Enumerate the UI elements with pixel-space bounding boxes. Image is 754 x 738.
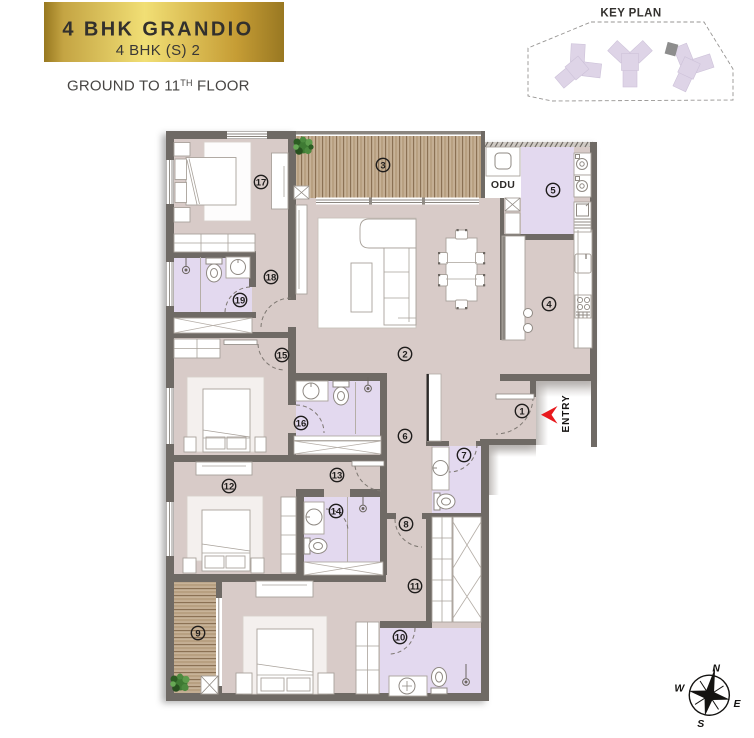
svg-text:4: 4	[546, 299, 552, 310]
svg-text:E: E	[733, 698, 741, 710]
svg-text:4 BHK (S) 2: 4 BHK (S) 2	[116, 42, 200, 59]
svg-text:9: 9	[195, 628, 200, 639]
svg-text:16: 16	[296, 418, 307, 429]
svg-text:13: 13	[332, 470, 343, 481]
svg-text:14: 14	[331, 506, 342, 517]
svg-text:ENTRY: ENTRY	[561, 394, 572, 432]
svg-text:10: 10	[395, 632, 406, 643]
svg-text:KEY PLAN: KEY PLAN	[600, 8, 661, 20]
svg-text:19: 19	[235, 295, 246, 306]
svg-text:S: S	[697, 718, 704, 730]
svg-text:12: 12	[224, 481, 235, 492]
svg-text:11: 11	[410, 581, 421, 592]
svg-text:ODU: ODU	[491, 179, 515, 191]
svg-text:18: 18	[266, 272, 277, 283]
svg-text:W: W	[674, 683, 685, 695]
svg-text:5: 5	[550, 185, 556, 196]
svg-text:8: 8	[403, 519, 408, 530]
svg-text:6: 6	[402, 431, 407, 442]
svg-text:15: 15	[277, 350, 288, 361]
svg-text:3: 3	[380, 160, 385, 171]
svg-text:17: 17	[256, 177, 267, 188]
svg-text:2: 2	[402, 349, 407, 360]
svg-text:7: 7	[461, 450, 466, 461]
svg-text:GROUND TO 11TH FLOOR: GROUND TO 11TH FLOOR	[67, 78, 250, 95]
svg-text:4 BHK GRANDIO: 4 BHK GRANDIO	[62, 19, 253, 41]
svg-text:N: N	[712, 663, 720, 675]
svg-text:1: 1	[519, 406, 525, 417]
